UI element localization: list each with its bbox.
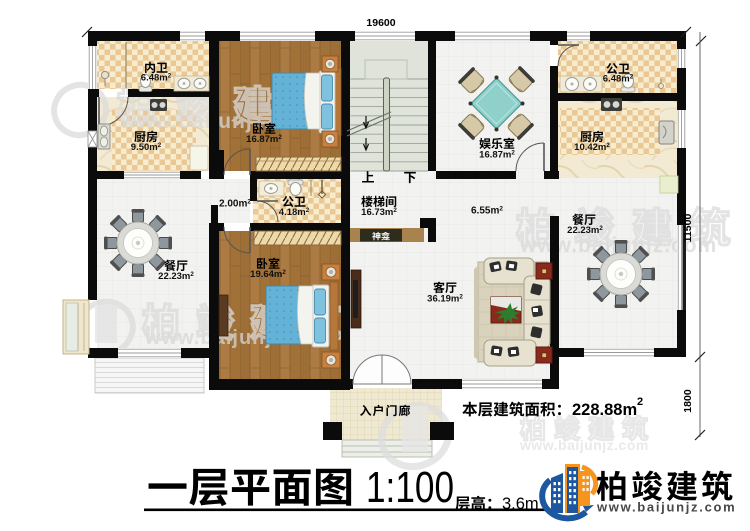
svg-text:228.88m: 228.88m (572, 401, 637, 419)
svg-text:19600: 19600 (366, 17, 395, 29)
svg-text:3.6m: 3.6m (502, 495, 539, 513)
svg-text:10.42m2: 10.42m2 (574, 142, 610, 153)
svg-text:11500: 11500 (682, 214, 694, 243)
svg-text:2.00m2: 2.00m2 (219, 199, 251, 210)
svg-text:2: 2 (637, 396, 643, 408)
svg-text:22.23m2: 22.23m2 (158, 271, 194, 282)
svg-text:6.55m2: 6.55m2 (471, 206, 503, 217)
svg-text:36.19m2: 36.19m2 (427, 294, 463, 305)
svg-text:1800: 1800 (682, 389, 694, 413)
svg-text:9.50m2: 9.50m2 (131, 142, 162, 153)
svg-text:4.18m2: 4.18m2 (279, 207, 310, 218)
svg-text:22.23m2: 22.23m2 (567, 225, 603, 236)
svg-text:16.87m2: 16.87m2 (479, 150, 515, 161)
svg-text:6.48m2: 6.48m2 (141, 73, 172, 84)
svg-text:16.73m2: 16.73m2 (361, 207, 397, 218)
svg-text:1:100: 1:100 (366, 463, 454, 512)
svg-text:19.64m2: 19.64m2 (250, 269, 286, 280)
svg-text:16.87m2: 16.87m2 (246, 134, 282, 145)
svg-text:6.48m2: 6.48m2 (603, 74, 634, 85)
svg-text:www.baijunjz.com: www.baijunjz.com (596, 500, 736, 515)
svg-text:www.baijunjz.com: www.baijunjz.com (519, 437, 649, 453)
